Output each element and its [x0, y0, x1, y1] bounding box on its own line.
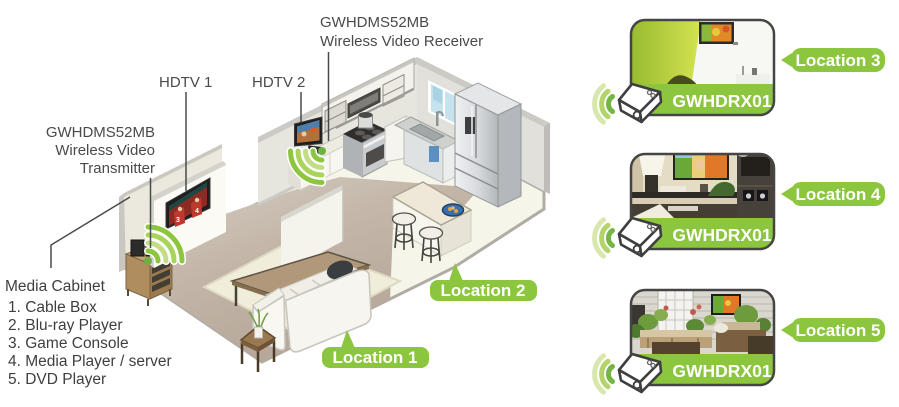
svg-text:Location 5: Location 5 [795, 321, 880, 340]
svg-text:Media Cabinet: Media Cabinet [5, 278, 106, 295]
svg-text:Location 1: Location 1 [332, 348, 417, 367]
svg-text:Location 3: Location 3 [795, 51, 880, 70]
svg-text:GWHDRX01: GWHDRX01 [672, 91, 771, 111]
svg-text:Wireless Video: Wireless Video [55, 142, 155, 159]
svg-text:5. DVD Player: 5. DVD Player [8, 371, 106, 388]
svg-text:GWHDMS52MB: GWHDMS52MB [320, 14, 429, 31]
svg-text:GWHDMS52MB: GWHDMS52MB [46, 124, 155, 141]
svg-text:2. Blu-ray Player: 2. Blu-ray Player [8, 317, 123, 334]
svg-text:GWHDRX01: GWHDRX01 [672, 361, 771, 381]
svg-text:HDTV 2: HDTV 2 [252, 74, 305, 91]
svg-text:Wireless Video Receiver: Wireless Video Receiver [320, 33, 483, 50]
svg-text:Location 2: Location 2 [440, 281, 525, 300]
svg-text:1. Cable Box: 1. Cable Box [8, 299, 97, 316]
svg-text:HDTV 1: HDTV 1 [159, 74, 212, 91]
svg-text:3. Game Console: 3. Game Console [8, 335, 129, 352]
svg-text:Transmitter: Transmitter [80, 160, 155, 177]
svg-text:4. Media Player / server: 4. Media Player / server [8, 353, 172, 370]
svg-text:GWHDRX01: GWHDRX01 [672, 225, 771, 245]
svg-text:3: 3 [176, 217, 180, 224]
svg-text:Location 4: Location 4 [795, 185, 881, 204]
svg-text:4: 4 [195, 208, 199, 215]
